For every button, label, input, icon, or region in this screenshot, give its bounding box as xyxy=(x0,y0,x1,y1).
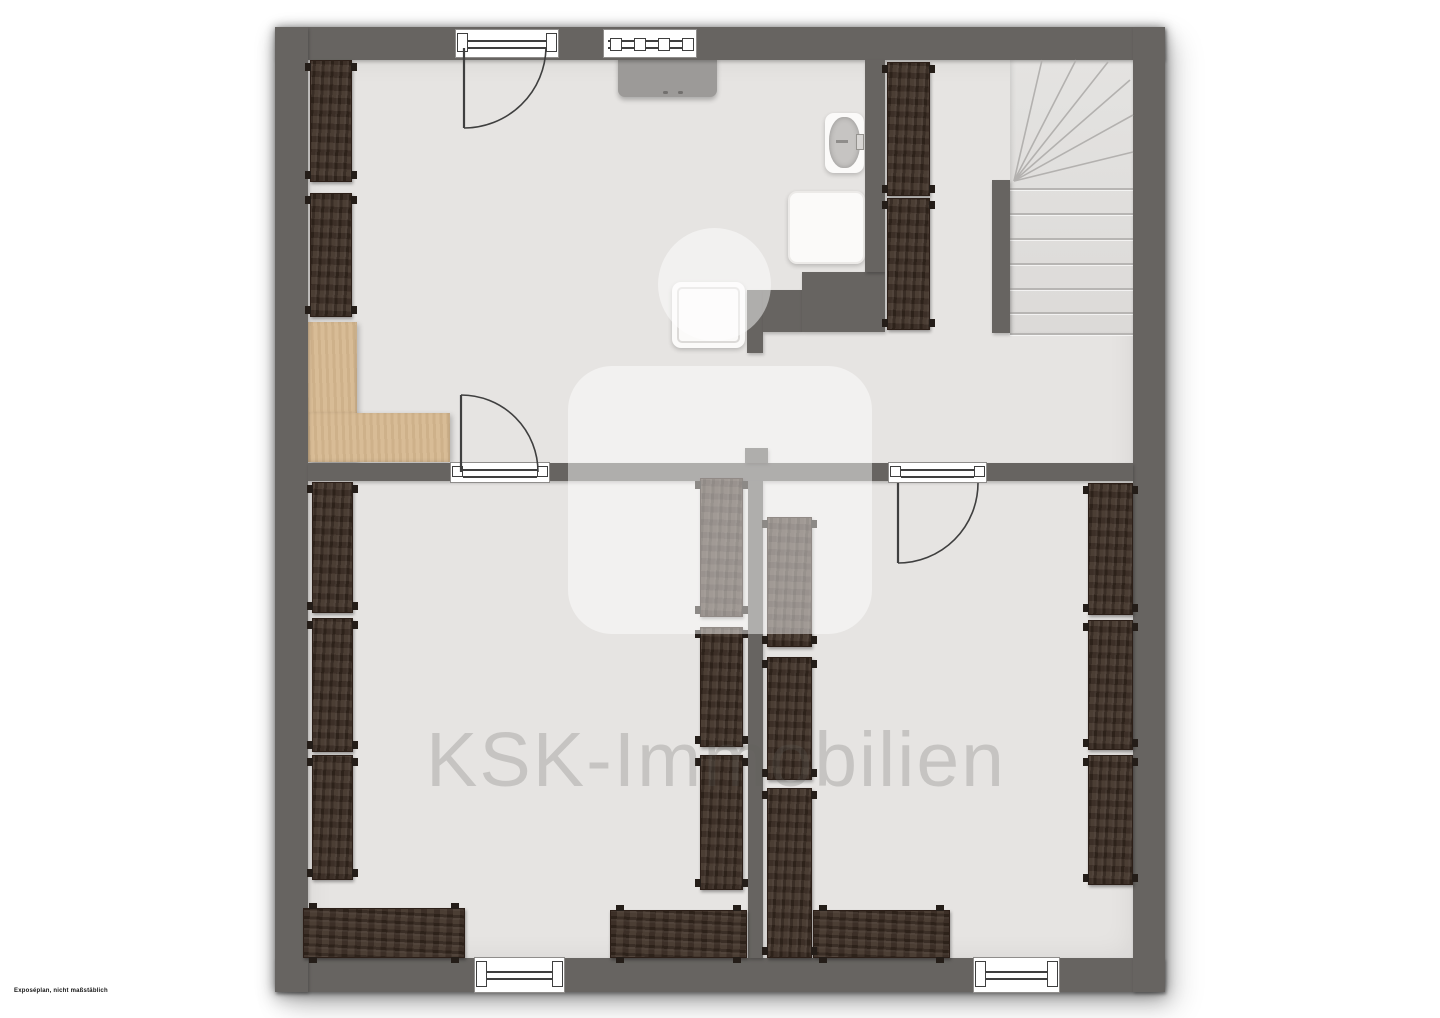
door-lower-right-room-swing-arc xyxy=(898,483,978,563)
stair-winder-line-2 xyxy=(1014,60,1076,181)
stair-winder-line-5 xyxy=(1014,115,1133,181)
watermark-text: KSK-Immobilien xyxy=(426,716,1006,805)
watermark-logo-body xyxy=(568,366,872,634)
floorplan-page: KSK-Immobilien Exposéplan, nicht maßstäb… xyxy=(0,0,1440,1018)
door-lower-left-room-swing-arc xyxy=(461,395,538,472)
stair-winder-line-4 xyxy=(1014,80,1130,181)
watermark-logo-dot xyxy=(658,228,771,341)
door-top-entry-swing-arc xyxy=(464,48,546,128)
disclaimer-text: Exposéplan, nicht maßstäblich xyxy=(14,988,108,994)
